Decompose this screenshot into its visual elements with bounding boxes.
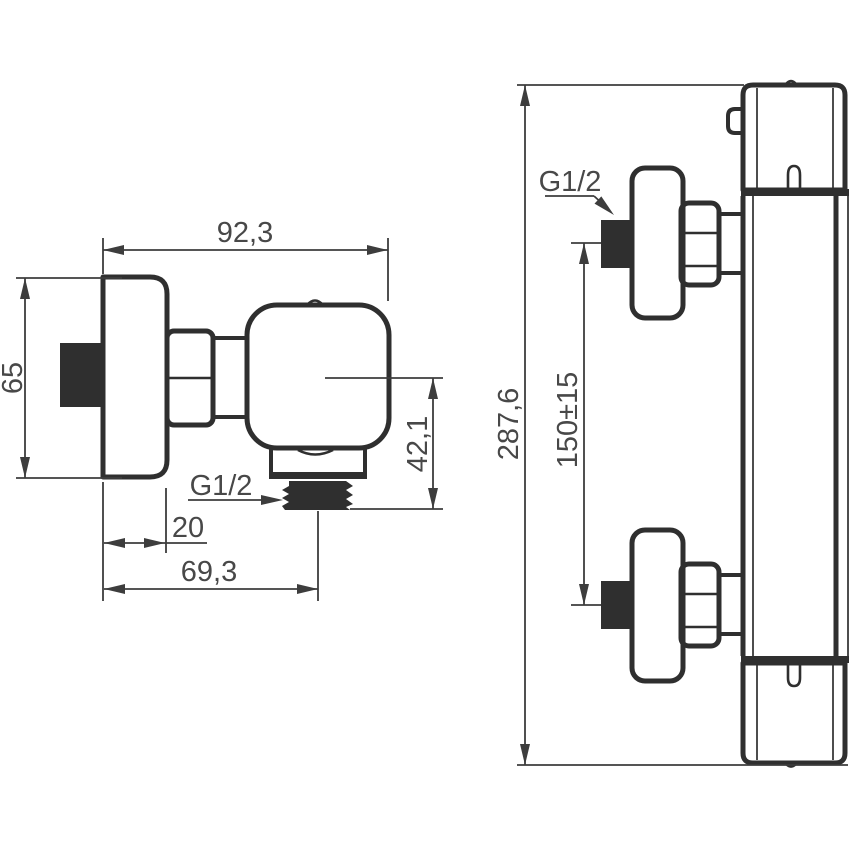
dim-connection-spacing-label: 150±15 bbox=[552, 372, 584, 469]
lower-connection bbox=[601, 530, 743, 681]
dim-plate-depth-label: 20 bbox=[172, 512, 204, 544]
thread-callout-side: G1/2 bbox=[188, 470, 283, 505]
arrowhead bbox=[367, 245, 388, 255]
upper-connection bbox=[601, 168, 743, 318]
dim-outlet-offset-label: 69,3 bbox=[181, 556, 237, 588]
upper-adapter bbox=[719, 214, 743, 273]
arrowhead bbox=[520, 85, 530, 106]
upper-inlet-block bbox=[601, 220, 632, 268]
dimension-overall-width: 92,3 bbox=[103, 217, 388, 301]
dim-outlet-drop-label: 42,1 bbox=[402, 416, 434, 472]
dimension-connection-spacing: 150±15 bbox=[552, 243, 601, 605]
upper-band bbox=[741, 189, 849, 196]
dim-overall-width-label: 92,3 bbox=[217, 217, 273, 249]
wall-plate bbox=[103, 277, 167, 477]
arrowhead bbox=[104, 538, 125, 548]
upper-flange bbox=[632, 168, 683, 318]
arrowhead bbox=[261, 495, 283, 505]
wall-inlet-block bbox=[60, 343, 103, 407]
upper-hex-nut bbox=[681, 203, 719, 285]
dimension-outlet-offset: 69,3 bbox=[104, 511, 318, 601]
arrowhead bbox=[428, 488, 438, 509]
front-view: 287,6 150±15 G1/2 bbox=[493, 81, 849, 767]
neck-base bbox=[269, 472, 367, 479]
arrowhead bbox=[20, 457, 30, 478]
adapter-sleeve bbox=[213, 338, 247, 417]
lower-inlet-block bbox=[601, 581, 632, 629]
arrowhead bbox=[428, 378, 438, 399]
dim-overall-height-label: 287,6 bbox=[493, 388, 525, 461]
arrowhead bbox=[579, 584, 589, 605]
mixer-body bbox=[247, 305, 389, 448]
arrowhead bbox=[20, 278, 30, 299]
arrowhead bbox=[103, 245, 124, 255]
arrowhead bbox=[579, 243, 589, 264]
arrowhead bbox=[297, 584, 318, 594]
lower-flange bbox=[632, 530, 683, 681]
technical-drawing: 92,3 65 42,1 20 bbox=[0, 0, 850, 850]
lower-hex-nut bbox=[681, 564, 719, 646]
dim-height-label: 65 bbox=[0, 362, 29, 394]
thread-callout-front: G1/2 bbox=[539, 166, 618, 219]
top-knob-slot bbox=[788, 166, 800, 190]
bottom-knob-slot bbox=[788, 663, 800, 686]
arrowhead bbox=[520, 744, 530, 765]
front-view-geometry bbox=[601, 81, 849, 767]
outlet-thread bbox=[282, 481, 353, 510]
top-knob bbox=[743, 85, 845, 190]
lower-adapter bbox=[719, 575, 743, 634]
thread-label-side: G1/2 bbox=[190, 470, 253, 502]
drawing-canvas: 92,3 65 42,1 20 bbox=[0, 0, 850, 850]
thread-label-front: G1/2 bbox=[539, 166, 602, 198]
neck-arc bbox=[298, 450, 333, 455]
arrowhead bbox=[144, 538, 165, 548]
arrowhead bbox=[104, 584, 125, 594]
side-view: 92,3 65 42,1 20 bbox=[0, 217, 443, 601]
bottom-knob bbox=[743, 663, 845, 763]
